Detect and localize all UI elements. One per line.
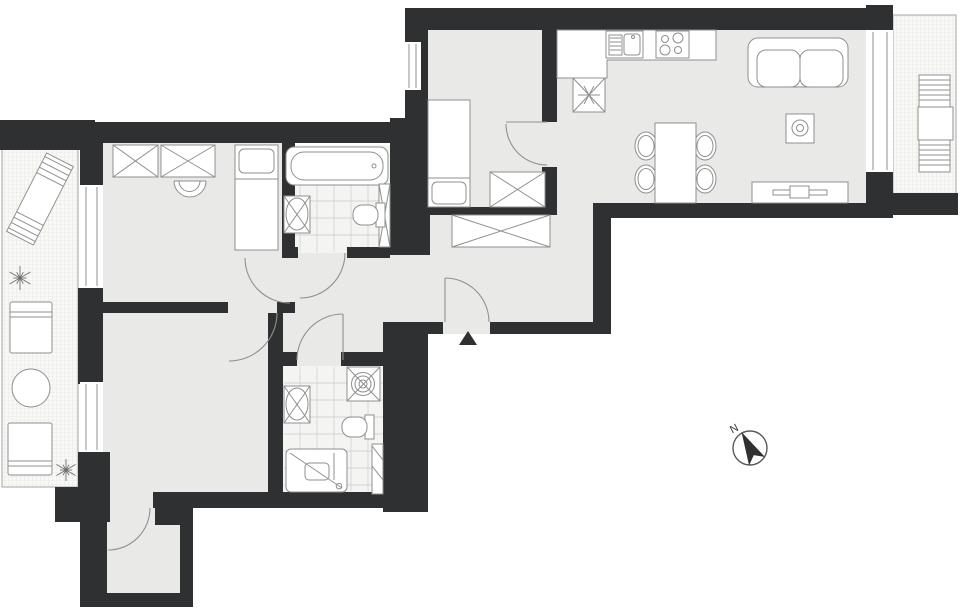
balcony-right-chair-b xyxy=(919,140,950,172)
wall-west-b xyxy=(78,288,103,384)
balcony-armchair-a xyxy=(10,302,52,353)
bathroom1-toilet xyxy=(353,203,385,227)
window-living-balcony xyxy=(866,30,893,172)
window-small-room xyxy=(404,42,421,90)
wall-smallroom-east-a xyxy=(542,10,557,122)
wall-living-south xyxy=(593,203,893,218)
balcony-round-table xyxy=(12,369,50,407)
floor-plan: N xyxy=(0,0,960,613)
sofa xyxy=(748,38,848,87)
wall-nook-south xyxy=(80,593,193,607)
window-bedroom-1-balcony xyxy=(80,185,103,288)
bedroom-2-floor xyxy=(103,313,283,492)
wall-hall-south-b xyxy=(490,322,611,334)
wall-hall-south-a xyxy=(383,322,443,334)
smallroom-wardrobe xyxy=(490,172,545,207)
washing-machine xyxy=(286,449,347,492)
wall-balcony-right-post-top xyxy=(866,5,893,30)
wall-top-main xyxy=(405,8,868,30)
wall-bathroom1-east-column xyxy=(390,118,430,255)
window-bedroom-2-balcony xyxy=(80,382,103,452)
wall-bathroom1-south-b xyxy=(347,247,390,258)
wall-bedroom1-south-a xyxy=(100,302,228,313)
bedroom1-single-bed xyxy=(235,145,278,250)
floor-plan-svg: N xyxy=(0,0,960,613)
layer-annotations: N xyxy=(459,331,767,465)
wall-bedroom1-south-b xyxy=(277,302,295,313)
bathroom1-sink xyxy=(284,196,310,233)
north-compass: N xyxy=(728,417,767,465)
balcony-armchair-b xyxy=(8,423,52,475)
coffee-table-plant xyxy=(786,114,814,143)
wall-nook-west xyxy=(80,495,107,607)
balcony-right-table xyxy=(918,107,953,140)
balcony-right-chair-a xyxy=(919,75,950,107)
fridge xyxy=(573,78,605,112)
wall-nook-east xyxy=(180,520,193,600)
wall-bathroom2-north-right xyxy=(341,352,383,366)
stove-hob xyxy=(656,31,689,58)
wall-balcony-right-post-bottom xyxy=(866,172,893,218)
wall-balcony-right-south xyxy=(893,193,958,215)
wall-block-southeast xyxy=(383,330,428,512)
bathroom2-sink xyxy=(284,386,310,423)
wall-bathroom1-south-a xyxy=(283,247,298,258)
bathroom2-toilet xyxy=(342,415,374,439)
wall-bedroom2-east xyxy=(268,313,283,500)
wall-bathroom2-north-left xyxy=(283,352,297,366)
bedroom1-wardrobe-a xyxy=(113,145,158,177)
wall-west-a xyxy=(80,143,103,185)
compass-label: N xyxy=(728,422,741,436)
bathtub xyxy=(286,147,388,185)
shower xyxy=(347,367,380,401)
shower-screen xyxy=(372,444,383,494)
kitchen-sink-unit xyxy=(606,31,643,58)
tv-stand xyxy=(752,182,848,203)
wall-smallroom-south xyxy=(428,207,545,215)
wall-top-west xyxy=(80,122,430,143)
smallroom-bed xyxy=(428,100,470,207)
bedroom1-wardrobe-b xyxy=(161,145,215,177)
hall-wardrobe xyxy=(452,215,550,247)
wall-hall-east xyxy=(593,203,611,333)
